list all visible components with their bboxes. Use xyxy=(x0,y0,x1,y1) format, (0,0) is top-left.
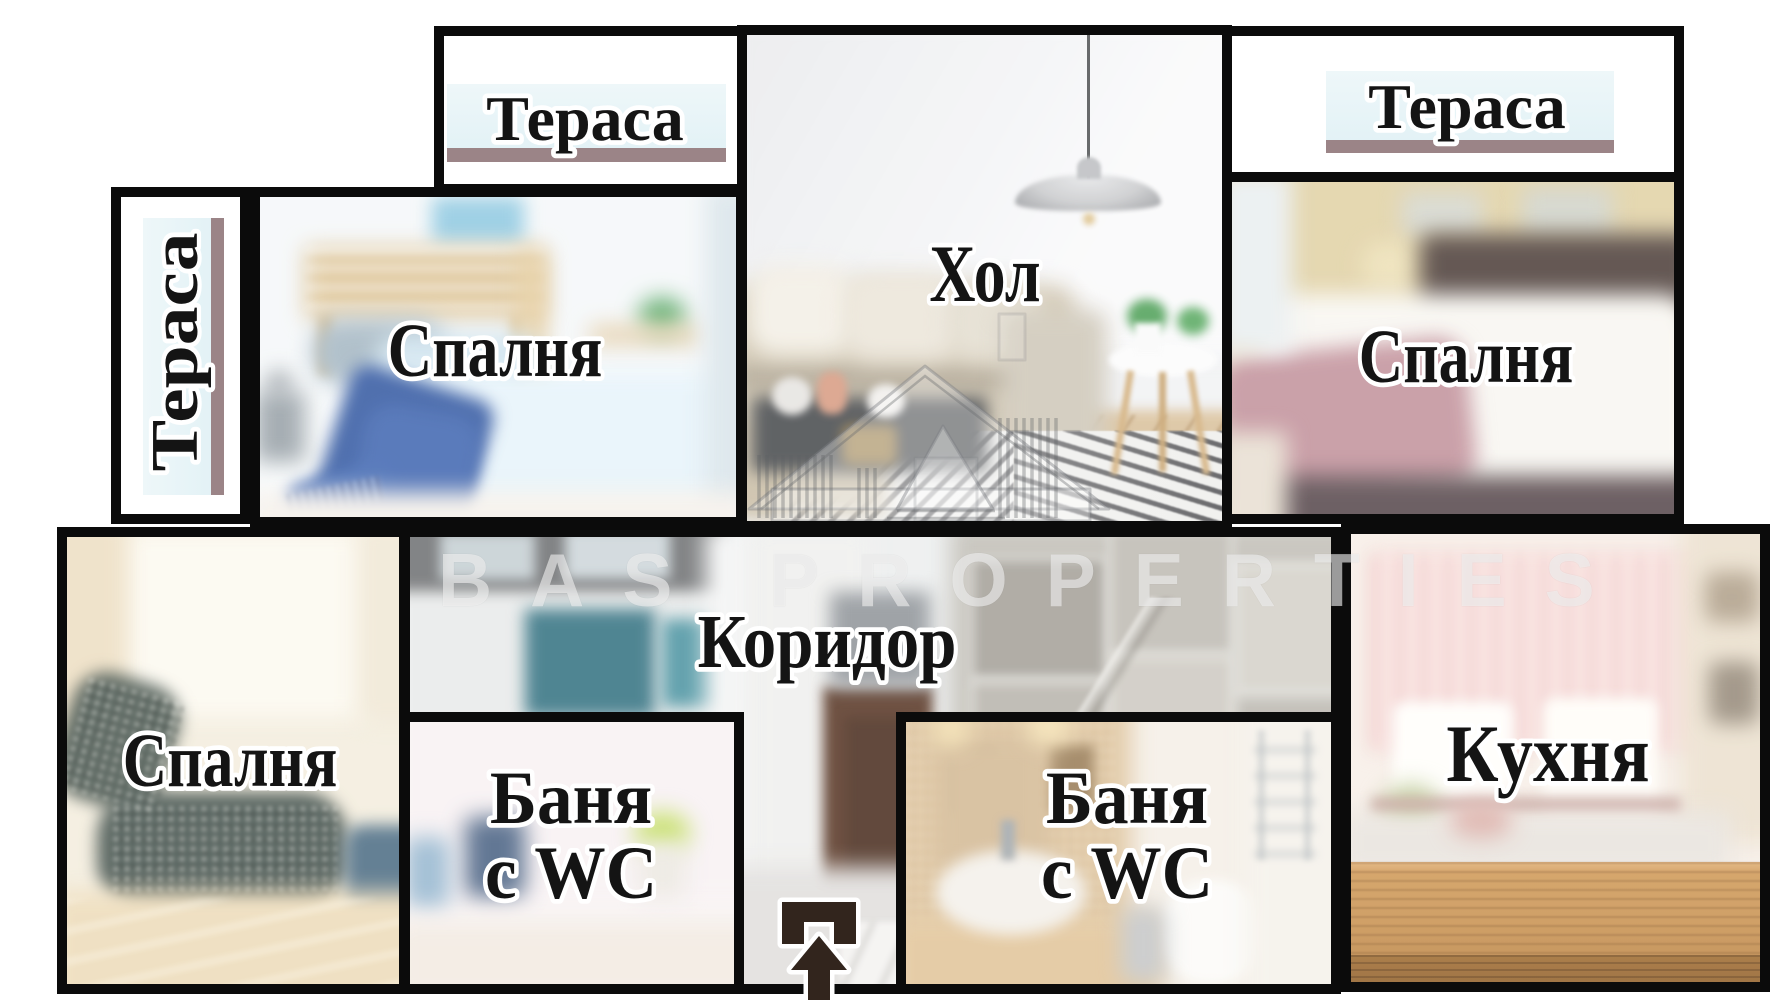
svg-text:Кухня: Кухня xyxy=(1446,708,1649,799)
svg-text:Баня: Баня xyxy=(1046,756,1208,839)
svg-text:Баня: Баня xyxy=(490,756,652,839)
svg-text:Спалня: Спалня xyxy=(123,718,338,803)
svg-text:Тераса: Тераса xyxy=(1368,71,1565,142)
svg-text:Спалня: Спалня xyxy=(1359,314,1574,399)
svg-text:Тераса: Тераса xyxy=(486,83,683,154)
svg-text:Тераса: Тераса xyxy=(137,232,212,471)
svg-text:Спалня: Спалня xyxy=(388,308,603,393)
svg-text:с WC: с WC xyxy=(485,831,657,914)
svg-text:Хол: Хол xyxy=(929,227,1040,318)
svg-text:с WC: с WC xyxy=(1041,831,1213,914)
